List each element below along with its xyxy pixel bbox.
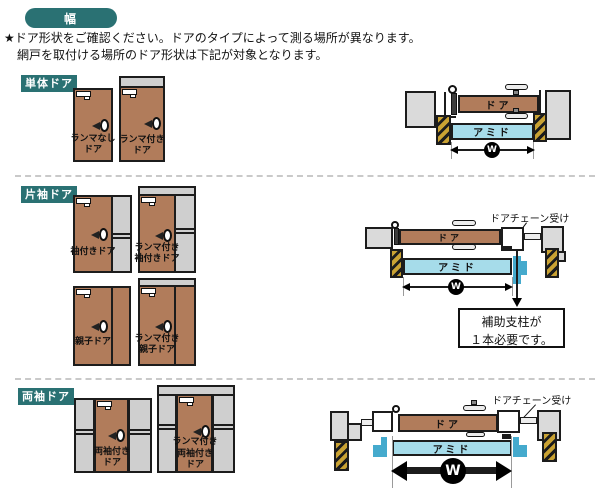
support-post-left: [381, 437, 387, 457]
door-handle-icon: [471, 400, 477, 405]
door-handle-icon: [155, 323, 163, 331]
side-panel-frame-left: [372, 411, 393, 432]
door-handle-icon: [152, 117, 161, 130]
frame-post-right: [545, 248, 559, 278]
hinge-icon: [451, 93, 457, 115]
connector-bar: [520, 417, 537, 424]
door-handle-icon: [108, 432, 116, 440]
panel-divider: [129, 429, 151, 435]
support-post: [521, 261, 527, 275]
panel-divider: [175, 228, 195, 234]
door-oyako: 親子ドア: [73, 286, 131, 366]
door-handle-icon: [155, 232, 163, 240]
door-ranma-nashi: ランマなし ドア: [73, 88, 113, 162]
door-chain-receiver: [502, 434, 511, 439]
door-handle-icon: [91, 231, 99, 239]
door-sode-tsuki: 袖付きドア: [73, 195, 132, 273]
door-slab: ドア: [398, 414, 498, 432]
frame-post-left: [334, 441, 349, 471]
wall-block-left: [365, 227, 393, 249]
door-handle-icon: [513, 90, 519, 95]
door-slab-label: ドア: [438, 231, 462, 244]
width-arrow-thick: [391, 461, 407, 481]
support-note-box: 補助支柱が １本必要です。: [458, 308, 565, 348]
wall-block-far-left: [347, 423, 362, 441]
door-handle-icon: [466, 432, 485, 437]
section-label-one-sleeve-door: 片袖ドア: [21, 186, 77, 203]
intro-note-line1: ★ドア形状をご確認ください。ドアのタイプによって測る場所が異なります。: [4, 29, 421, 46]
frame-post-left: [436, 115, 451, 145]
door-closer-icon: [105, 406, 111, 410]
width-arrow: [450, 146, 458, 154]
width-section-badge: 幅: [25, 8, 117, 28]
screen-bar-label: アミド: [433, 441, 472, 456]
door-handle-icon: [116, 429, 125, 442]
door-closer-icon: [84, 203, 90, 207]
screen-bar-label: アミド: [438, 259, 477, 274]
wall-block-right: [545, 90, 571, 140]
door-ranma-oyako: ランマ付き 親子ドア: [138, 278, 196, 366]
door-slab: ドア: [399, 229, 501, 245]
side-panel-frame-right: [497, 410, 520, 433]
door-closer-icon: [84, 96, 90, 100]
frame-post-right: [542, 432, 557, 462]
door-closer-icon: [130, 94, 136, 98]
door-handle-icon: [452, 244, 476, 250]
section-separator: [15, 175, 595, 177]
frame-post-left: [390, 249, 403, 278]
width-arrow: [527, 146, 535, 154]
door-handle-icon: [463, 405, 486, 411]
door-handle-icon: [452, 220, 476, 226]
hinge-icon: [392, 405, 400, 413]
door-label: 親子ドア: [61, 337, 125, 348]
door-label: ランマ付き 袖付きドア: [125, 243, 189, 266]
support-post-right: [519, 445, 527, 457]
door-closer-icon: [149, 293, 155, 297]
door-handle-icon: [163, 320, 172, 333]
door-slab: ドア: [458, 95, 539, 113]
support-post-left: [373, 445, 381, 457]
door-handle-icon: [99, 320, 108, 333]
panel-divider: [158, 424, 176, 430]
door-label: ランマ付き ドア: [110, 135, 174, 158]
door-closer-icon: [149, 202, 155, 206]
door-handle-icon: [144, 120, 152, 128]
wall-block-left: [405, 91, 436, 128]
screen-bar: アミド: [392, 440, 512, 456]
section-label-single-door: 単体ドア: [21, 75, 77, 92]
door-label: ランマ付き 両袖付き ドア: [163, 437, 227, 471]
door-chain-receiver-label: ドアチェーン受け: [490, 210, 569, 225]
down-arrow: [516, 250, 518, 298]
door-closer-icon: [84, 294, 90, 298]
width-arrow: [402, 283, 410, 291]
width-mark: W: [440, 458, 466, 484]
panel-divider: [213, 424, 234, 430]
door-handle-icon: [513, 108, 519, 113]
door-handle-icon: [92, 122, 100, 130]
frame-post-right: [533, 113, 547, 142]
door-handle-icon: [201, 425, 210, 438]
section-separator: [15, 378, 595, 380]
door-ranma-tsuki: ランマ付き ドア: [119, 76, 165, 162]
section-label-two-sleeve-door: 両袖ドア: [18, 388, 74, 405]
door-jamb-line: [539, 90, 541, 115]
door-handle-icon: [99, 228, 108, 241]
door-closer-icon: [187, 402, 193, 406]
door-handle-icon: [91, 323, 99, 331]
screen-bar: アミド: [403, 258, 512, 275]
screen-bar: アミド: [451, 123, 534, 140]
door-chain-receiver-label: ドアチェーン受け: [492, 392, 571, 407]
door-ranma-ryosode-tsuki: ランマ付き 両袖付き ドア: [157, 385, 235, 473]
door-slab-label: ドア: [486, 97, 512, 112]
door-chain-receiver: [503, 246, 512, 251]
width-mark: W: [484, 142, 500, 158]
connector-bar: [524, 233, 541, 240]
width-arrow: [505, 283, 513, 291]
width-mark: W: [448, 279, 464, 295]
door-label: ランマ付き 親子ドア: [125, 334, 189, 357]
intro-note-line2: 網戸を取付ける場所のドア形状は下記が対象となります。: [17, 46, 327, 63]
screen-bar-label: アミド: [473, 124, 512, 139]
page: 幅 ★ドア形状をご確認ください。ドアのタイプによって測る場所が異なります。 網戸…: [0, 0, 600, 488]
door-label: 袖付きドア: [61, 247, 125, 258]
door-label: 両袖付き ドア: [80, 447, 144, 470]
door-handle-icon: [505, 113, 528, 119]
panel-divider: [112, 233, 131, 239]
door-handle-icon: [100, 119, 109, 132]
door-handle-icon: [193, 428, 201, 436]
door-ranma-sode-tsuki: ランマ付き 袖付きドア: [138, 186, 196, 273]
door-handle-icon: [163, 229, 172, 242]
down-arrow: [512, 298, 522, 307]
door-ryosode-tsuki: 両袖付き ドア: [74, 398, 152, 473]
panel-divider: [75, 429, 94, 435]
width-arrow-thick: [496, 461, 512, 481]
door-slab-label: ドア: [435, 416, 461, 431]
